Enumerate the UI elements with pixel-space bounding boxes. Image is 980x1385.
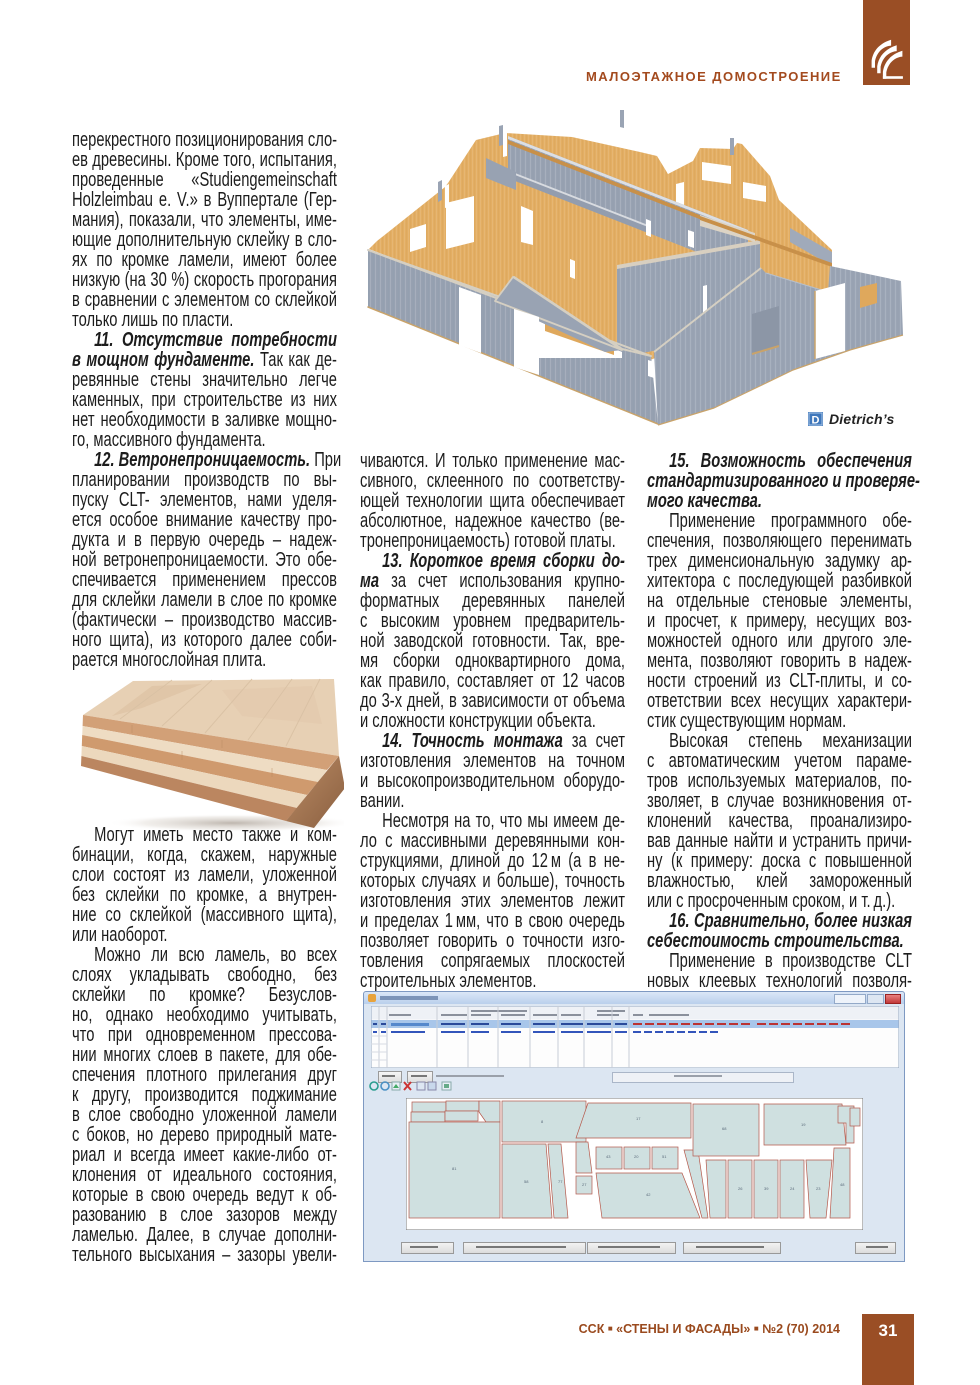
svg-text:77: 77 (558, 1179, 563, 1184)
svg-text:39: 39 (764, 1186, 769, 1191)
svg-text:58: 58 (524, 1179, 529, 1184)
svg-text:17: 17 (636, 1116, 641, 1121)
svg-text:26: 26 (738, 1186, 743, 1191)
svg-text:24: 24 (790, 1186, 795, 1191)
svg-text:D: D (812, 415, 820, 427)
svg-text:42: 42 (646, 1192, 651, 1197)
svg-text:23: 23 (816, 1186, 821, 1191)
svg-text:20: 20 (634, 1154, 639, 1159)
svg-text:68: 68 (722, 1126, 727, 1131)
svg-text:27: 27 (582, 1182, 587, 1187)
svg-text:19: 19 (801, 1122, 806, 1127)
svg-text:81: 81 (452, 1166, 457, 1171)
svg-text:51: 51 (662, 1154, 667, 1159)
svg-text:43: 43 (606, 1154, 611, 1159)
svg-text:48: 48 (840, 1182, 845, 1187)
